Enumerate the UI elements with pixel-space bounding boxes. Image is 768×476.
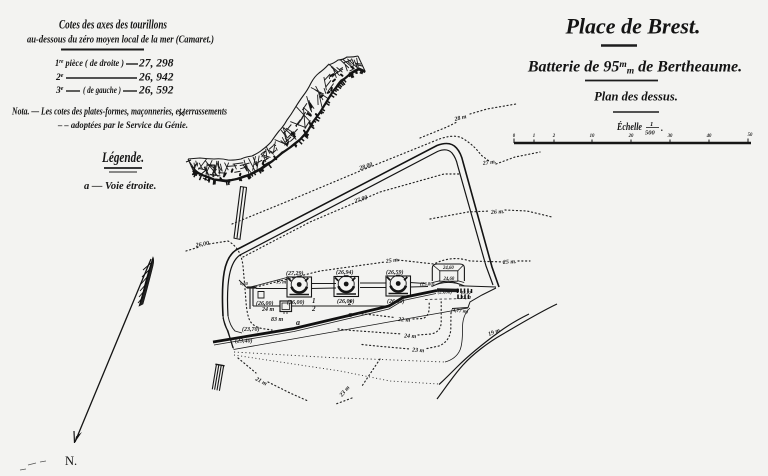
svg-text:1: 1 bbox=[312, 297, 316, 305]
svg-text:‒ ‒ adoptées par le Service d: ‒ ‒ adoptées par le Service du Génie. bbox=[57, 121, 188, 131]
svg-text:83 m: 83 m bbox=[271, 317, 284, 323]
svg-text:Nota. — Les cotes des plates-f: Nota. — Les cotes des plates-formes, maç… bbox=[11, 107, 227, 118]
svg-text:26, 942: 26, 942 bbox=[138, 72, 174, 84]
svg-text:au-dessous du zéro moyen local: au-dessous du zéro moyen local de la mer… bbox=[27, 35, 214, 46]
svg-text:2: 2 bbox=[552, 134, 556, 139]
svg-text:Place de Brest.: Place de Brest. bbox=[564, 14, 700, 39]
svg-text:(27,29): (27,29) bbox=[286, 270, 304, 277]
svg-text:22 m: 22 m bbox=[397, 317, 411, 324]
svg-text:(26,94): (26,94) bbox=[336, 269, 354, 276]
svg-text:(26,00): (26,00) bbox=[287, 299, 305, 306]
svg-text:24,60: 24,60 bbox=[443, 277, 455, 282]
svg-text:(23,70): (23,70) bbox=[242, 326, 260, 333]
svg-text:24,60: 24,60 bbox=[442, 266, 454, 271]
svg-text:( de gauche ): ( de gauche ) bbox=[83, 85, 121, 96]
svg-text:500: 500 bbox=[645, 130, 656, 137]
svg-text:30: 30 bbox=[667, 134, 673, 139]
svg-text:(26,00): (26,00) bbox=[256, 300, 274, 307]
svg-text:24 m: 24 m bbox=[261, 307, 275, 313]
svg-text:10: 10 bbox=[590, 134, 595, 139]
svg-text:2: 2 bbox=[347, 299, 352, 307]
svg-text:(26,59): (26,59) bbox=[386, 269, 404, 276]
svg-text:26 m.: 26 m. bbox=[490, 209, 506, 216]
svg-text:(23,80): (23,80) bbox=[420, 283, 435, 288]
svg-text:23 m: 23 m bbox=[411, 347, 425, 354]
svg-text:(26,00): (26,00) bbox=[387, 298, 405, 305]
svg-text:40: 40 bbox=[706, 134, 712, 139]
svg-text:Cotes des axes des tourillons: Cotes des axes des tourillons bbox=[59, 18, 167, 32]
svg-text:(23,80): (23,80) bbox=[438, 291, 453, 296]
svg-text:(26,00): (26,00) bbox=[337, 298, 355, 305]
svg-text:Échelle: Échelle bbox=[616, 121, 642, 133]
svg-text:N.: N. bbox=[65, 454, 77, 468]
svg-text:1re pièce ( de droite ): 1re pièce ( de droite ) bbox=[55, 58, 124, 69]
svg-text:Plan des dessus.: Plan des dessus. bbox=[594, 90, 678, 104]
svg-text:a — Voie étroite.: a — Voie étroite. bbox=[84, 181, 156, 192]
svg-text:1: 1 bbox=[650, 121, 653, 128]
svg-text:26, 592: 26, 592 bbox=[138, 85, 174, 97]
svg-text:Batterie de 95mm de Bertheaume: Batterie de 95mm de Bertheaume. bbox=[527, 59, 742, 77]
svg-text:27, 298: 27, 298 bbox=[138, 58, 174, 70]
svg-text:1: 1 bbox=[533, 134, 535, 139]
svg-text:0,60: 0,60 bbox=[240, 281, 249, 286]
svg-text:a: a bbox=[296, 318, 300, 327]
svg-text:24 m: 24 m bbox=[403, 333, 417, 340]
svg-text:Légende.: Légende. bbox=[101, 150, 144, 166]
svg-text:23,32: 23,32 bbox=[460, 295, 472, 300]
svg-text:25 m.: 25 m. bbox=[502, 259, 518, 266]
svg-text:(23,40): (23,40) bbox=[235, 338, 253, 345]
svg-text:2: 2 bbox=[311, 305, 316, 313]
svg-text:15 m: 15 m bbox=[276, 281, 286, 286]
svg-text:50: 50 bbox=[748, 133, 753, 138]
svg-text:20: 20 bbox=[628, 134, 634, 139]
svg-text:.: . bbox=[661, 123, 663, 133]
svg-text:a: a bbox=[348, 310, 352, 319]
